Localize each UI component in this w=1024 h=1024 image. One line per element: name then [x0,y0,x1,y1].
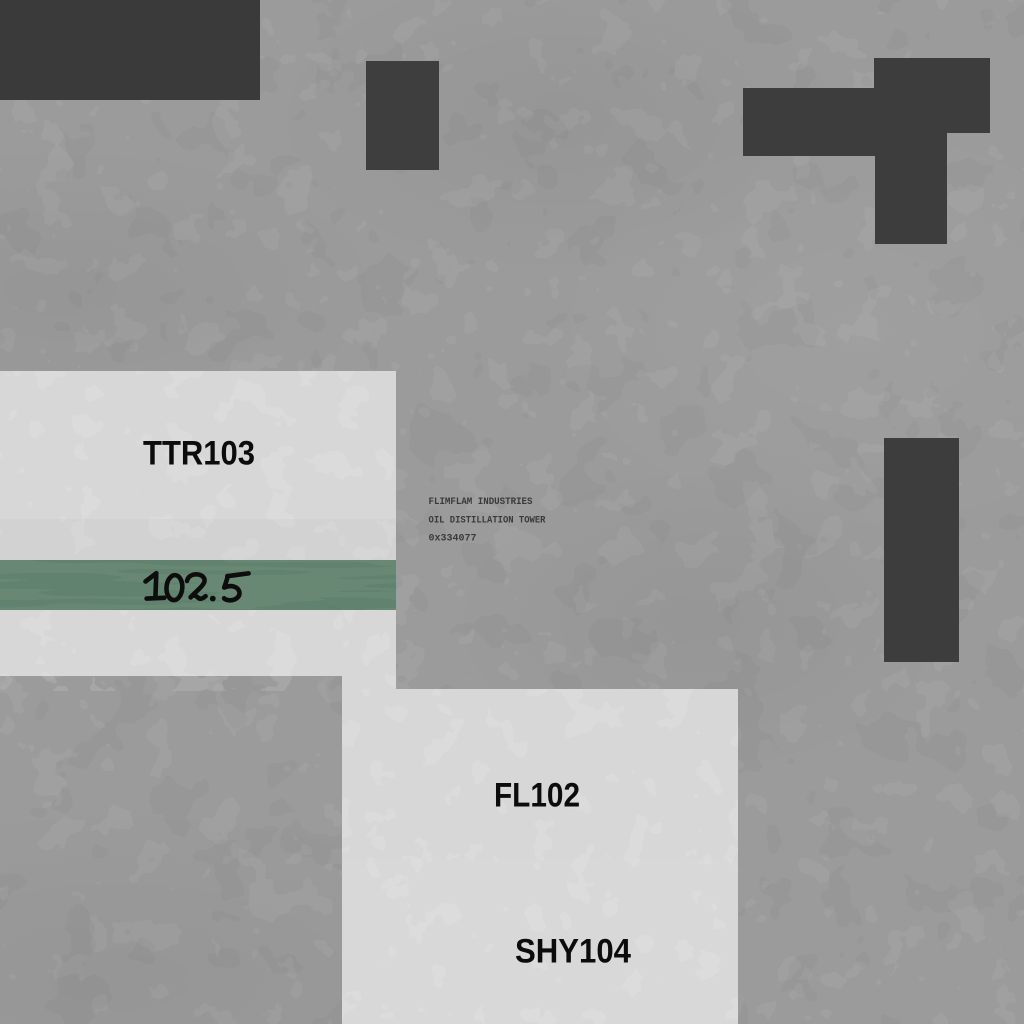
svg-text:SHY104: SHY104 [515,933,631,971]
svg-text:FLIMFLAM INDUSTRIES: FLIMFLAM INDUSTRIES [429,496,533,508]
svg-text:FL102: FL102 [494,777,580,815]
svg-text:0x334077: 0x334077 [429,533,477,545]
svg-text:OIL DISTILLATION TOWER: OIL DISTILLATION TOWER [429,515,547,527]
svg-text:TTR103: TTR103 [143,435,255,473]
